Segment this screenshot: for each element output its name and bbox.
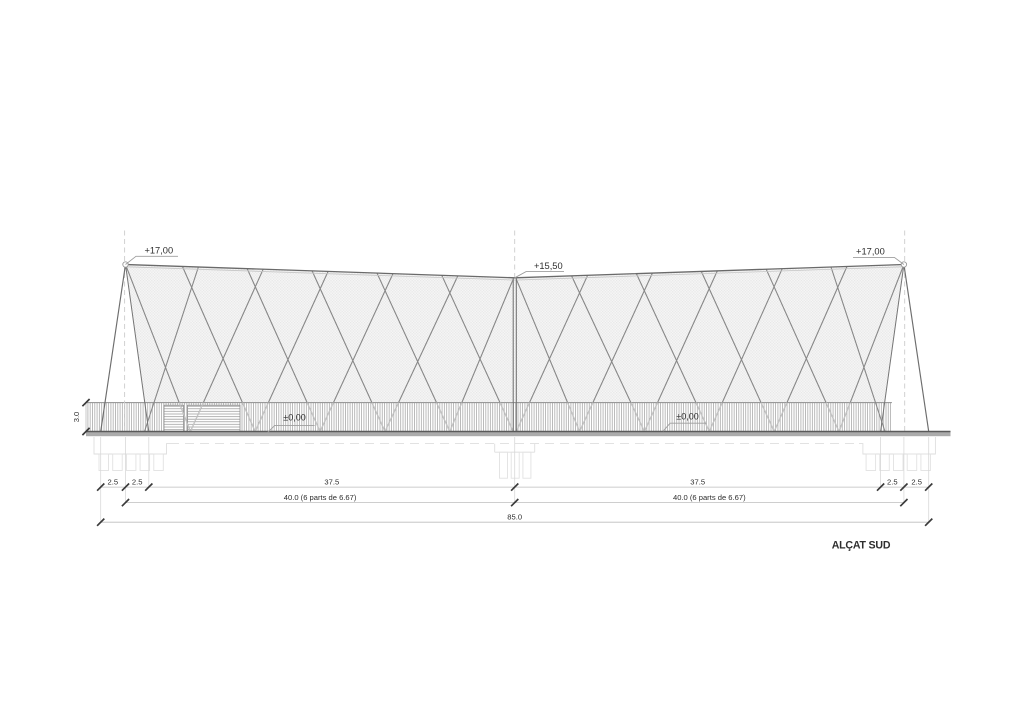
svg-text:2.5: 2.5 xyxy=(132,477,143,486)
svg-text:+15,50: +15,50 xyxy=(534,261,563,271)
svg-text:40.0 (6 parts de 6.67): 40.0 (6 parts de 6.67) xyxy=(673,493,746,502)
svg-text:+17,00: +17,00 xyxy=(144,245,173,255)
svg-text:37.5: 37.5 xyxy=(324,477,339,486)
svg-text:±0,00: ±0,00 xyxy=(283,412,305,422)
svg-text:37.5: 37.5 xyxy=(690,477,705,486)
svg-text:85.0: 85.0 xyxy=(507,512,522,521)
svg-text:ALÇAT SUD: ALÇAT SUD xyxy=(832,540,891,552)
svg-text:+17,00: +17,00 xyxy=(856,246,885,256)
svg-text:3.0: 3.0 xyxy=(72,412,81,423)
svg-text:2.5: 2.5 xyxy=(887,477,898,486)
svg-text:2.5: 2.5 xyxy=(911,477,922,486)
svg-text:40.0 (6 parts de 6.67): 40.0 (6 parts de 6.67) xyxy=(284,493,357,502)
svg-text:2.5: 2.5 xyxy=(108,477,119,486)
svg-text:±0,00: ±0,00 xyxy=(676,411,698,421)
